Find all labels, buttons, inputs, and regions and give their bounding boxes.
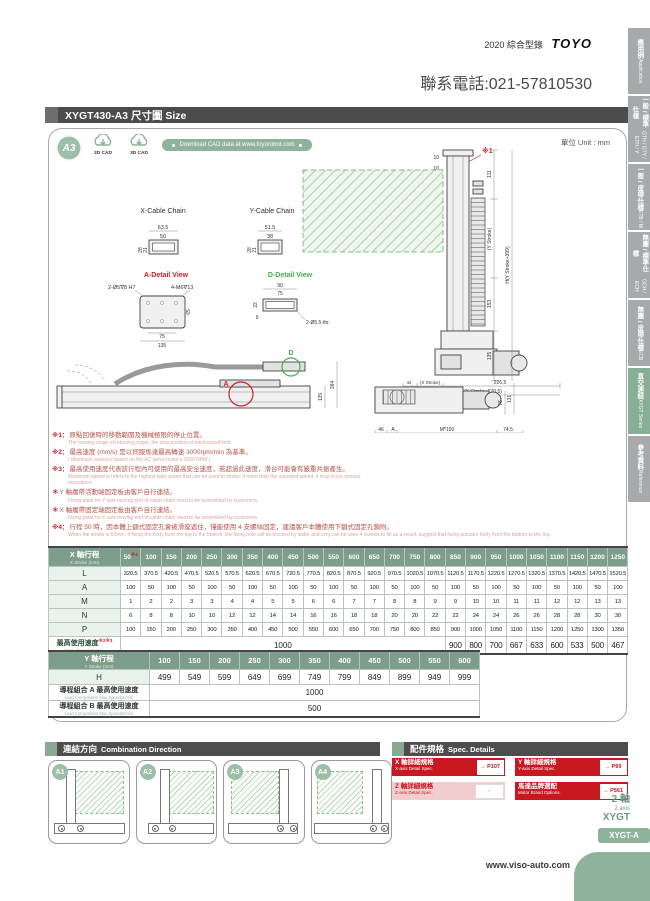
table-cell: 500 <box>150 701 480 718</box>
row-label: H <box>49 670 150 685</box>
table-cell: 1300 <box>587 623 607 637</box>
table-cell: 549 <box>180 670 210 685</box>
column-header: 500 <box>390 651 420 670</box>
column-header: 400 <box>330 651 360 670</box>
table-cell: 870.5 <box>344 567 364 581</box>
svg-text:D-Detail View: D-Detail View <box>268 272 313 279</box>
column-header: 700 <box>384 547 404 567</box>
table-cell: 10 <box>202 609 222 623</box>
table-cell: 1270.5 <box>506 567 526 581</box>
mount-pin-icon <box>370 825 377 832</box>
y-axis-shape <box>279 769 289 827</box>
column-header: 1050 <box>526 547 546 567</box>
sidebar-tab-sublabel: GCH / ECH <box>632 274 647 298</box>
column-header: 1150 <box>567 547 587 567</box>
sidebar-tab[interactable]: 一般 / 標準仕樣 GTH / GTY / ETH / Y <box>628 96 650 162</box>
combination-card[interactable]: A4 <box>311 760 393 844</box>
table-cell: 50 <box>547 581 567 595</box>
sidebar-tab-sublabel: GTH / GTY / ETH / Y <box>632 128 647 162</box>
table-cell: 50 <box>263 581 283 595</box>
catalog-page: 2020 綜合型錄 TOYO 聯系電話:021-57810530 應用例 App… <box>0 0 650 901</box>
table-cell: 1520.5 <box>608 567 628 581</box>
svg-text:111: 111 <box>487 170 493 178</box>
row-label: N <box>49 609 121 623</box>
table-cell: 100 <box>323 581 343 595</box>
svg-text:(X Stroke): (X Stroke) <box>420 380 441 385</box>
column-header: 950 <box>486 547 506 567</box>
footnote-en: ( Maximum speed is based on the AC servo… <box>52 457 376 463</box>
sidebar-tab-sublabel: ETB / M <box>635 210 643 228</box>
sidebar-tab-sublabel: ECB <box>635 350 643 360</box>
table-cell: 849 <box>360 670 390 685</box>
table-cell: 1000 <box>466 623 486 637</box>
stroke-header: Y 軸行程Y Stroke (mm) <box>49 651 150 670</box>
svg-text:21: 21 <box>252 247 258 253</box>
d-detail-view: D-Detail View 90 75 22 9 2-Ø5.5-thr. <box>253 272 330 326</box>
svg-text:135: 135 <box>158 343 167 349</box>
column-header: 450 <box>360 651 390 670</box>
column-header: 400 <box>263 547 283 567</box>
sidebar-tab[interactable]: 參考資料 Reference <box>628 436 650 502</box>
table-cell: 30 <box>608 609 628 623</box>
footnote-en: Fixing plate for X axis moving end of ca… <box>52 515 376 521</box>
sidebar-tab[interactable]: 無塵 / 皮帶仕樣 ECB <box>628 300 650 366</box>
row-label: L <box>49 567 121 581</box>
column-header: 1000 <box>506 547 526 567</box>
row-label: M <box>49 595 121 609</box>
sidebar-tab-label: 一般 / 皮帶仕樣 <box>634 166 644 210</box>
combination-section-bar: 連結方向 Combination Direction <box>45 742 380 756</box>
table-cell: 3 <box>181 595 201 609</box>
y-axis-elevation-view: ※1 10 10 111 (Y Stroke) 153 135 <box>303 146 560 395</box>
table-cell: 8 <box>161 609 181 623</box>
table-cell: 650 <box>344 623 364 637</box>
svg-text:226.5: 226.5 <box>494 380 507 386</box>
table-cell: 1200 <box>547 623 567 637</box>
table-cell: 100 <box>161 581 181 595</box>
spec-link-text: X 軸詳細規格 X-axis Detail Spec. <box>392 758 475 776</box>
svg-text:153: 153 <box>487 300 493 309</box>
column-header: 1100 <box>547 547 567 567</box>
table-cell: 5 <box>283 595 303 609</box>
svg-text:50: 50 <box>160 234 166 240</box>
table-cell: 50 <box>384 581 404 595</box>
table-cell: 633 <box>526 637 546 655</box>
svg-text:(Y Stroke): (Y Stroke) <box>487 227 493 250</box>
footnote-ref: ※1： <box>52 432 69 439</box>
svg-text:2-Ø5.5-thr.: 2-Ø5.5-thr. <box>306 320 330 326</box>
row-label: 導程組合 A 最高使用速度Lead Composition Max.Speed(… <box>49 685 150 701</box>
table-cell: 12 <box>567 595 587 609</box>
svg-text:A: A <box>223 381 228 388</box>
table-cell: 1170.5 <box>466 567 486 581</box>
corner-decoration <box>574 852 650 901</box>
svg-text:284: 284 <box>330 381 336 390</box>
table-cell: 9 <box>445 595 465 609</box>
column-header: 600 <box>344 547 364 567</box>
spec-link[interactable]: Z 軸詳細規格 Z-axis Detail Spec. - <box>392 782 505 800</box>
x-carriage-side-view: 76 131 <box>375 383 514 415</box>
column-header: 200 <box>181 547 201 567</box>
svg-text:2-Ø5∇8 H7: 2-Ø5∇8 H7 <box>108 285 136 291</box>
table-cell: 20 <box>405 609 425 623</box>
table-cell: 899 <box>390 670 420 685</box>
spec-link-text: Y 軸詳細規格 Y-axis Detail Spec. <box>515 758 598 776</box>
table-cell: 1020.5 <box>405 567 425 581</box>
table-cell: 1070.5 <box>425 567 445 581</box>
spec-link[interactable]: Y 軸詳細規格 Y-axis Detail Spec. → P99 <box>515 758 628 776</box>
table-cell: 10 <box>486 595 506 609</box>
table-cell: 100 <box>121 623 141 637</box>
footnote-zh: ＊Y 軸履帶活動端固定板由客戶自行連結。 <box>52 489 376 497</box>
table-cell: 26 <box>526 609 546 623</box>
x-axis-shape <box>314 823 389 834</box>
combination-badge: A3 <box>227 764 243 780</box>
table-cell: 200 <box>161 623 181 637</box>
table-cell: 550 <box>303 623 323 637</box>
table-cell: 13 <box>608 595 628 609</box>
table-cell: 12 <box>222 609 242 623</box>
table-cell: 12 <box>242 609 262 623</box>
svg-text:135: 135 <box>487 352 493 361</box>
table-cell: 3 <box>202 595 222 609</box>
mount-pin-icon <box>169 825 176 832</box>
table-cell: 28 <box>567 609 587 623</box>
table-cell: 900 <box>445 623 465 637</box>
table-cell: 50 <box>506 581 526 595</box>
footnote-en: The moving range of returning origin, th… <box>52 440 376 446</box>
table-cell: 420.5 <box>161 567 181 581</box>
table-cell: 50 <box>303 581 323 595</box>
svg-text:135: 135 <box>318 393 324 402</box>
table-cell: 10 <box>466 595 486 609</box>
svg-text:10: 10 <box>433 155 439 161</box>
sidebar-tab[interactable]: 無塵 / 標準仕樣 GCH / ECH <box>628 232 650 298</box>
table-cell: 667 <box>506 637 526 655</box>
page-title-bar: XYGT430-A3 尺寸圖 Size <box>45 107 628 123</box>
table-cell: 450 <box>263 623 283 637</box>
catalog-year-label: 2020 綜合型錄 <box>484 40 543 50</box>
sidebar-tab[interactable]: 應用例 Application <box>628 28 650 94</box>
y-cable-chain-view: Y-Cable Chain 51.5 38 28 21 <box>247 208 295 254</box>
svg-text:44: 44 <box>406 380 412 385</box>
table-cell: 370.5 <box>141 567 161 581</box>
svg-text:Y-Cable Chain: Y-Cable Chain <box>250 208 295 215</box>
table-cell: 7 <box>364 595 384 609</box>
footnote-ref: ＊ <box>52 489 60 496</box>
table-cell: 720.5 <box>283 567 303 581</box>
spec-link-text: Z 軸詳細規格 Z-axis Detail Spec. <box>392 782 473 800</box>
sidebar-tab-sublabel: XYGT Series <box>635 399 643 428</box>
table-cell: 620.5 <box>242 567 262 581</box>
spec-link-en: Y-axis Detail Spec. <box>518 767 598 772</box>
table-cell: 850 <box>425 623 445 637</box>
table-cell: 2 <box>161 595 181 609</box>
footnote: ※4：行程 50 時，因本體上額式固定孔會被滑座遮住，僅能使用 4 支螺絲固定，… <box>52 524 614 538</box>
footnote: ＊Y 軸履帶活動端固定板由客戶自行連結。 Fixing plate for Y … <box>52 489 376 503</box>
combination-title-en: Combination Direction <box>101 745 181 754</box>
y-axis-shape <box>160 769 170 827</box>
svg-text:A-Detail View: A-Detail View <box>144 272 189 279</box>
table-cell: 520.5 <box>202 567 222 581</box>
table-cell: 100 <box>202 581 222 595</box>
table-cell: 50 <box>344 581 364 595</box>
footnote: ※2：最高速度 (mm/s) 是以伺服馬達最高轉速 3000rpm/min 為基… <box>52 449 376 463</box>
table-cell: 24 <box>486 609 506 623</box>
y-axis-shape <box>372 769 382 827</box>
column-header: 450 <box>283 547 303 567</box>
table-cell: 10 <box>181 609 201 623</box>
table-cell: 1320.5 <box>526 567 546 581</box>
footnote-zh: ＊X 軸履帶固定端固定板由客戶自行連結。 <box>52 507 376 515</box>
sidebar-tab-label: 參考資料 <box>634 444 644 470</box>
svg-text:D: D <box>288 350 293 357</box>
table-cell: 8 <box>405 595 425 609</box>
combination-title-zh: 連結方向 <box>63 743 97 755</box>
svg-text:22: 22 <box>253 302 259 308</box>
table-cell: 100 <box>486 581 506 595</box>
table-cell: 2 <box>141 595 161 609</box>
work-area-hatch <box>75 771 124 814</box>
footnote-zh: ※3：最高使用速度代表該行程內可使用的最高安全速度，若超過此速度，滑台可能會有嚴… <box>52 466 376 474</box>
table-cell: 100 <box>242 581 262 595</box>
table-cell: 4 <box>242 595 262 609</box>
footnote-ref: ※4： <box>52 524 69 531</box>
table-cell: 1220.5 <box>486 567 506 581</box>
footnote-en: Maximum speed is refers to the highest s… <box>52 474 376 486</box>
table-cell: 100 <box>364 581 384 595</box>
sidebar-tab-label: 直交連結 <box>634 373 644 399</box>
series-tag: 2 軸 2 axis XYGT <box>560 794 630 824</box>
table-cell: 600 <box>547 637 567 655</box>
table-cell: 500 <box>587 637 607 655</box>
contact-phone: 聯系電話:021-57810530 <box>260 70 592 94</box>
row-label: P <box>49 623 121 637</box>
sidebar-tab[interactable]: 一般 / 皮帶仕樣 ETB / M <box>628 164 650 230</box>
table-cell: 670.5 <box>263 567 283 581</box>
table-cell: 12 <box>547 595 567 609</box>
table-cell: 28 <box>547 609 567 623</box>
table-cell: 6 <box>323 595 343 609</box>
table-cell: 24 <box>466 609 486 623</box>
column-header: 300 <box>270 651 300 670</box>
table-cell: 30 <box>587 609 607 623</box>
a-detail-view: A-Detail View 2-Ø5∇8 H7 4-M6∇13 65 75 13… <box>108 272 193 349</box>
table-cell: 1100 <box>506 623 526 637</box>
column-header: 600 <box>450 651 480 670</box>
mount-pin-icon <box>381 825 388 832</box>
mount-pin-icon <box>290 825 297 832</box>
table-cell: 750 <box>384 623 404 637</box>
column-header: 1200 <box>587 547 607 567</box>
footnote: ※3：最高使用速度代表該行程內可使用的最高安全速度，若超過此速度，滑台可能會有嚴… <box>52 466 376 486</box>
column-header: 550 <box>420 651 450 670</box>
table-cell: 800 <box>405 623 425 637</box>
footnote-en: Fixing plate for Y axis moving end of ca… <box>52 498 376 504</box>
table-cell: 14 <box>283 609 303 623</box>
table-cell: 300 <box>202 623 222 637</box>
table-cell: 150 <box>141 623 161 637</box>
page-title: XYGT430-A3 尺寸圖 Size <box>65 108 186 123</box>
footnote: ※1：原點回復時的移動範圍及機械極限的停止位置。 The moving rang… <box>52 432 376 446</box>
spec-link[interactable]: X 軸詳細規格 X-axis Detail Spec. → P107 <box>392 758 505 776</box>
combination-card[interactable]: A3 <box>223 760 305 844</box>
column-header: 200 <box>210 651 240 670</box>
combination-badge: A1 <box>52 764 68 780</box>
table-cell: 16 <box>303 609 323 623</box>
table-cell: 1250 <box>567 623 587 637</box>
table-cell: 100 <box>608 581 628 595</box>
column-header: 50※4 <box>121 547 141 567</box>
table-cell: 533 <box>567 637 587 655</box>
table-cell: 50 <box>466 581 486 595</box>
sidebar-tab-label: 無塵 / 標準仕樣 <box>629 232 649 274</box>
svg-text:75: 75 <box>277 291 283 297</box>
table-cell: 470.5 <box>181 567 201 581</box>
column-header: 500 <box>303 547 323 567</box>
table-cell: 599 <box>210 670 240 685</box>
table-cell: 570.5 <box>222 567 242 581</box>
table-cell: 8 <box>141 609 161 623</box>
model-tab[interactable]: XYGT-A <box>598 828 650 843</box>
table-cell: 920.5 <box>364 567 384 581</box>
row-label: A <box>49 581 121 595</box>
column-header: 300 <box>222 547 242 567</box>
table-cell: 499 <box>150 670 180 685</box>
combination-badge: A2 <box>140 764 156 780</box>
column-header: 750 <box>405 547 425 567</box>
table-cell: 4 <box>222 595 242 609</box>
table-cell: 5 <box>263 595 283 609</box>
axis-count-en: 2 axis <box>560 806 630 813</box>
footnote: ＊X 軸履帶固定端固定板由客戶自行連結。 Fixing plate for X … <box>52 507 376 521</box>
table-cell: 350 <box>222 623 242 637</box>
svg-text:10: 10 <box>433 166 439 172</box>
column-header: 250 <box>240 651 270 670</box>
spec-page-ref: → P99 <box>600 760 627 775</box>
table-cell: 1420.5 <box>567 567 587 581</box>
table-cell: 699 <box>270 670 300 685</box>
dimension-drawing: X-Cable Chain 63.5 50 28 21 Y-Cable Chai… <box>45 143 630 433</box>
column-header: 850 <box>445 547 465 567</box>
svg-text:X-Cable Chain: X-Cable Chain <box>140 208 186 215</box>
table-cell: 6 <box>121 609 141 623</box>
svg-text:21: 21 <box>143 247 149 253</box>
spec-page-ref: → P107 <box>477 760 504 775</box>
x-cable-chain-view: X-Cable Chain 63.5 50 28 21 <box>138 208 186 254</box>
table-cell: 100 <box>567 581 587 595</box>
table-cell: 700 <box>486 637 506 655</box>
y-stroke-table: Y 軸行程Y Stroke (mm)1001502002503003504004… <box>48 650 480 718</box>
table-cell: 18 <box>344 609 364 623</box>
series-name: XYGT <box>560 812 630 824</box>
column-header: 350 <box>300 651 330 670</box>
table-cell: 600 <box>323 623 343 637</box>
axis-count-zh: 2 軸 <box>560 794 630 806</box>
stroke-header: X 軸行程X Stroke (mm) <box>49 547 121 567</box>
table-cell: 11 <box>506 595 526 609</box>
table-cell: 26 <box>506 609 526 623</box>
x-axis-shape <box>228 823 298 834</box>
column-header: 250 <box>202 547 222 567</box>
table-cell: 1050 <box>486 623 506 637</box>
table-cell: 820.5 <box>323 567 343 581</box>
spec-title-zh: 配件規格 <box>410 743 444 755</box>
svg-text:65: 65 <box>186 309 192 315</box>
table-cell: 22 <box>445 609 465 623</box>
table-cell: 749 <box>300 670 330 685</box>
footnotes: ※1：原點回復時的移動範圍及機械極限的停止位置。 The moving rang… <box>52 432 622 541</box>
table-cell: 20 <box>384 609 404 623</box>
svg-text:51.5: 51.5 <box>265 225 276 231</box>
footnote-ref: ＊ <box>52 507 60 514</box>
sidebar-tab-sublabel: Application <box>635 59 643 83</box>
table-cell: 8 <box>384 595 404 609</box>
table-cell: 999 <box>450 670 480 685</box>
column-header: 150 <box>161 547 181 567</box>
svg-text:76: 76 <box>498 400 504 406</box>
table-cell: 100 <box>283 581 303 595</box>
svg-text:38: 38 <box>267 234 273 240</box>
table-cell: 13 <box>587 595 607 609</box>
mount-pin-icon <box>277 825 284 832</box>
column-header: 550 <box>323 547 343 567</box>
column-header: 800 <box>425 547 445 567</box>
spec-page-ref: - <box>475 784 504 799</box>
row-label: 導程組合 B 最高使用速度Lead Composition Max.Speed(… <box>49 701 150 718</box>
sidebar-tab[interactable]: 直交連結 XYGT Series <box>628 368 650 434</box>
table-cell: 100 <box>405 581 425 595</box>
table-cell: 6 <box>303 595 323 609</box>
catalog-edition: 2020 綜合型錄 TOYO <box>300 36 592 51</box>
table-cell: 11 <box>526 595 546 609</box>
spec-section-bar: 配件規格 Spec. Details <box>392 742 628 756</box>
combination-card[interactable]: A2 <box>136 760 218 844</box>
table-cell: 970.5 <box>384 567 404 581</box>
table-cell: 700 <box>364 623 384 637</box>
sidebar-tab-label: 無塵 / 皮帶仕樣 <box>634 306 644 350</box>
table-cell: 250 <box>181 623 201 637</box>
combination-card[interactable]: A1 <box>48 760 130 844</box>
table-cell: 467 <box>608 637 628 655</box>
svg-text:131: 131 <box>507 395 513 404</box>
table-cell: 14 <box>263 609 283 623</box>
sidebar-tab-label: 應用例 <box>634 39 644 59</box>
spec-link-en: X-axis Detail Spec. <box>395 767 475 772</box>
table-cell: 50 <box>425 581 445 595</box>
brand-logo: TOYO <box>551 36 592 51</box>
table-cell: 50 <box>587 581 607 595</box>
spec-link-en: Z-axis Detail Spec. <box>395 791 473 796</box>
combination-badge: A4 <box>315 764 331 780</box>
column-header: 350 <box>242 547 262 567</box>
site-url: www.viso-auto.com <box>420 860 570 870</box>
svg-text:75: 75 <box>159 334 165 340</box>
sidebar-tab-sublabel: Reference <box>635 470 643 493</box>
table-cell: 100 <box>526 581 546 595</box>
combination-cards: A1 A2 A3 <box>48 760 392 844</box>
table-cell: 18 <box>364 609 384 623</box>
svg-text:※1: ※1 <box>482 146 493 155</box>
y-axis-shape <box>66 769 76 827</box>
table-cell: 799 <box>330 670 360 685</box>
footnote-zh: ※4：行程 50 時，因本體上額式固定孔會被滑座遮住，僅能使用 4 支螺絲固定，… <box>52 524 614 532</box>
column-header: 150 <box>180 651 210 670</box>
footnote-ref: ※2： <box>52 449 69 456</box>
table-cell: 500 <box>283 623 303 637</box>
table-cell: 100 <box>121 581 141 595</box>
svg-text:90: 90 <box>277 283 283 289</box>
